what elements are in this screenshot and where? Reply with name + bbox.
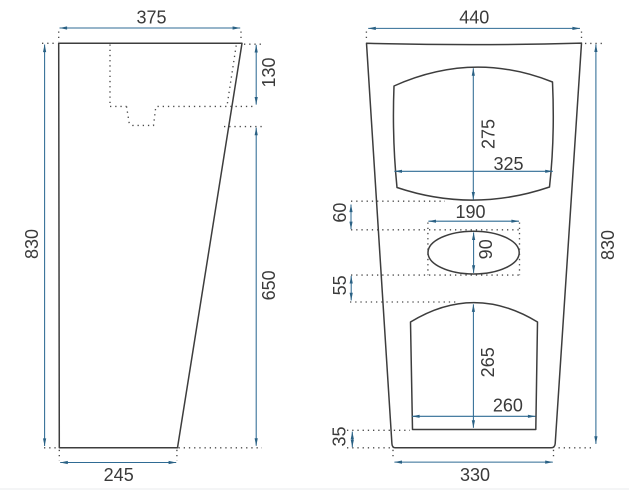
svg-text:90: 90 <box>476 239 496 259</box>
svg-text:375: 375 <box>136 8 166 28</box>
svg-text:190: 190 <box>455 202 485 222</box>
svg-text:35: 35 <box>330 426 350 446</box>
svg-text:830: 830 <box>22 229 42 259</box>
svg-text:330: 330 <box>460 465 490 485</box>
svg-text:245: 245 <box>104 465 134 485</box>
svg-text:130: 130 <box>259 57 279 87</box>
svg-text:440: 440 <box>459 8 489 28</box>
svg-text:650: 650 <box>259 270 279 300</box>
svg-text:325: 325 <box>493 154 523 174</box>
svg-text:830: 830 <box>598 230 618 260</box>
svg-text:60: 60 <box>330 203 350 223</box>
svg-text:260: 260 <box>493 395 523 415</box>
svg-text:55: 55 <box>330 275 350 295</box>
svg-text:265: 265 <box>478 347 498 377</box>
svg-text:275: 275 <box>478 119 498 149</box>
